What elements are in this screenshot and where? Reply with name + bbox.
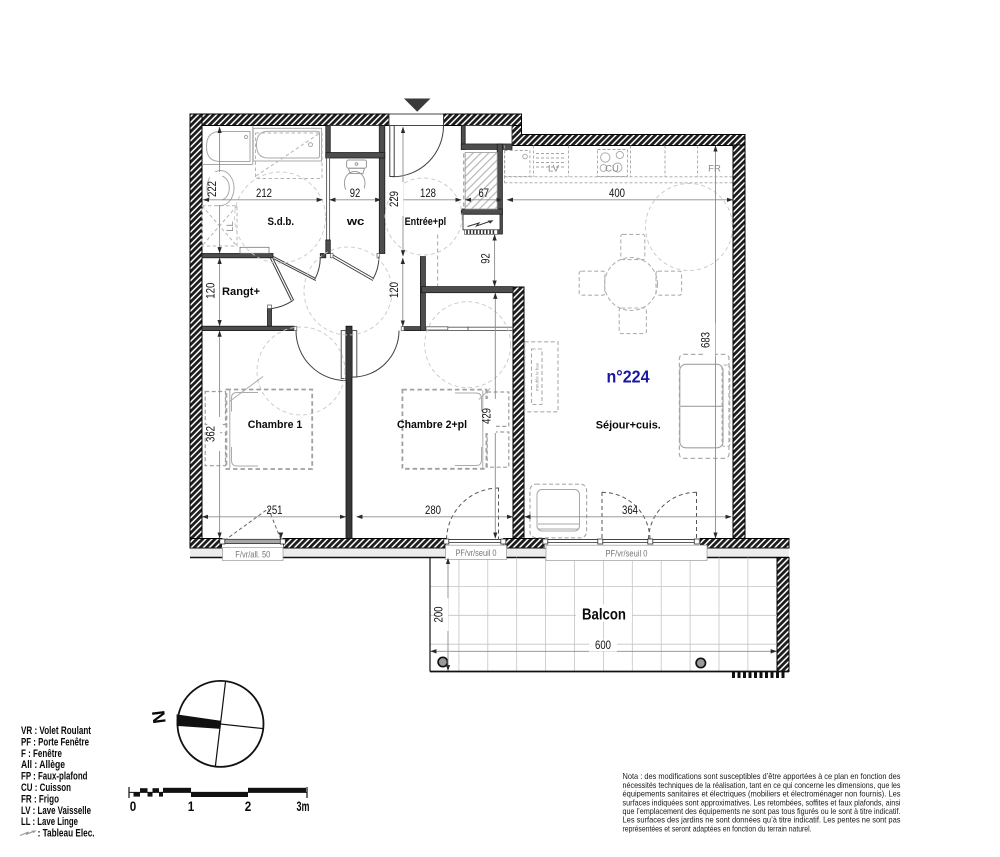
svg-text:PF/vr/seuil 0: PF/vr/seuil 0 bbox=[456, 548, 497, 558]
svg-text:FP : Faux-plafond: FP : Faux-plafond bbox=[21, 771, 88, 783]
svg-text:n°224: n°224 bbox=[607, 367, 650, 387]
svg-text:120: 120 bbox=[204, 282, 218, 298]
svg-text:Balcon: Balcon bbox=[582, 606, 626, 623]
svg-text:N: N bbox=[148, 709, 169, 724]
svg-text:600: 600 bbox=[595, 638, 611, 652]
svg-text:3m: 3m bbox=[297, 799, 310, 814]
svg-text:400: 400 bbox=[609, 186, 625, 200]
svg-text:wc: wc bbox=[346, 216, 365, 228]
svg-text:meuble tv bas: meuble tv bas bbox=[535, 362, 540, 391]
svg-text:Séjour+cuis.: Séjour+cuis. bbox=[596, 420, 661, 432]
svg-text:All : Allège: All : Allège bbox=[21, 759, 65, 771]
svg-text:LL: LL bbox=[225, 221, 236, 232]
svg-text:1: 1 bbox=[188, 799, 195, 814]
svg-text:212: 212 bbox=[256, 186, 272, 200]
svg-text:FR : Frigo: FR : Frigo bbox=[21, 793, 59, 805]
svg-text:222: 222 bbox=[205, 181, 219, 197]
svg-text:280: 280 bbox=[425, 503, 441, 517]
svg-text:Entrée+pl: Entrée+pl bbox=[405, 216, 447, 228]
svg-text:Rangt+: Rangt+ bbox=[222, 286, 260, 298]
svg-text:LL : Lave Linge: LL : Lave Linge bbox=[21, 816, 78, 828]
svg-text:362: 362 bbox=[204, 426, 218, 442]
svg-text:F : Fenêtre: F : Fenêtre bbox=[21, 748, 62, 760]
svg-text:200: 200 bbox=[432, 606, 446, 622]
svg-text:LV: LV bbox=[548, 164, 560, 175]
svg-text:229: 229 bbox=[387, 191, 401, 207]
svg-text:CU : Cuisson: CU : Cuisson bbox=[21, 782, 71, 794]
svg-text:2: 2 bbox=[245, 799, 252, 814]
svg-text:0: 0 bbox=[130, 799, 137, 814]
svg-text:CU: CU bbox=[605, 164, 619, 175]
svg-text:120: 120 bbox=[387, 282, 401, 298]
svg-text:LV : Lave Vaisselle: LV : Lave Vaisselle bbox=[21, 805, 91, 817]
svg-text:251: 251 bbox=[267, 503, 283, 517]
svg-text:PF : Porte Fenêtre: PF : Porte Fenêtre bbox=[21, 736, 89, 748]
svg-text:683: 683 bbox=[699, 332, 713, 348]
svg-text:représentées et seront adaptée: représentées et seront adaptées en fonct… bbox=[623, 823, 812, 833]
svg-text:67: 67 bbox=[479, 186, 490, 200]
svg-text:364: 364 bbox=[622, 503, 638, 517]
svg-text:S.d.b.: S.d.b. bbox=[268, 216, 295, 228]
svg-text:128: 128 bbox=[420, 186, 436, 200]
svg-text:Chambre 1: Chambre 1 bbox=[248, 419, 303, 431]
svg-text:92: 92 bbox=[479, 253, 493, 264]
svg-text:429: 429 bbox=[479, 408, 493, 424]
svg-text:: Tableau Elec.: : Tableau Elec. bbox=[38, 828, 95, 840]
svg-text:Chambre 2+pl: Chambre 2+pl bbox=[397, 419, 467, 431]
svg-text:VR : Volet Roulant: VR : Volet Roulant bbox=[21, 725, 91, 737]
svg-text:F/vr/all. 50: F/vr/all. 50 bbox=[235, 550, 270, 560]
svg-text:92: 92 bbox=[350, 186, 361, 200]
svg-text:PF/vr/seuil 0: PF/vr/seuil 0 bbox=[606, 548, 648, 558]
svg-text:FR: FR bbox=[708, 164, 721, 175]
